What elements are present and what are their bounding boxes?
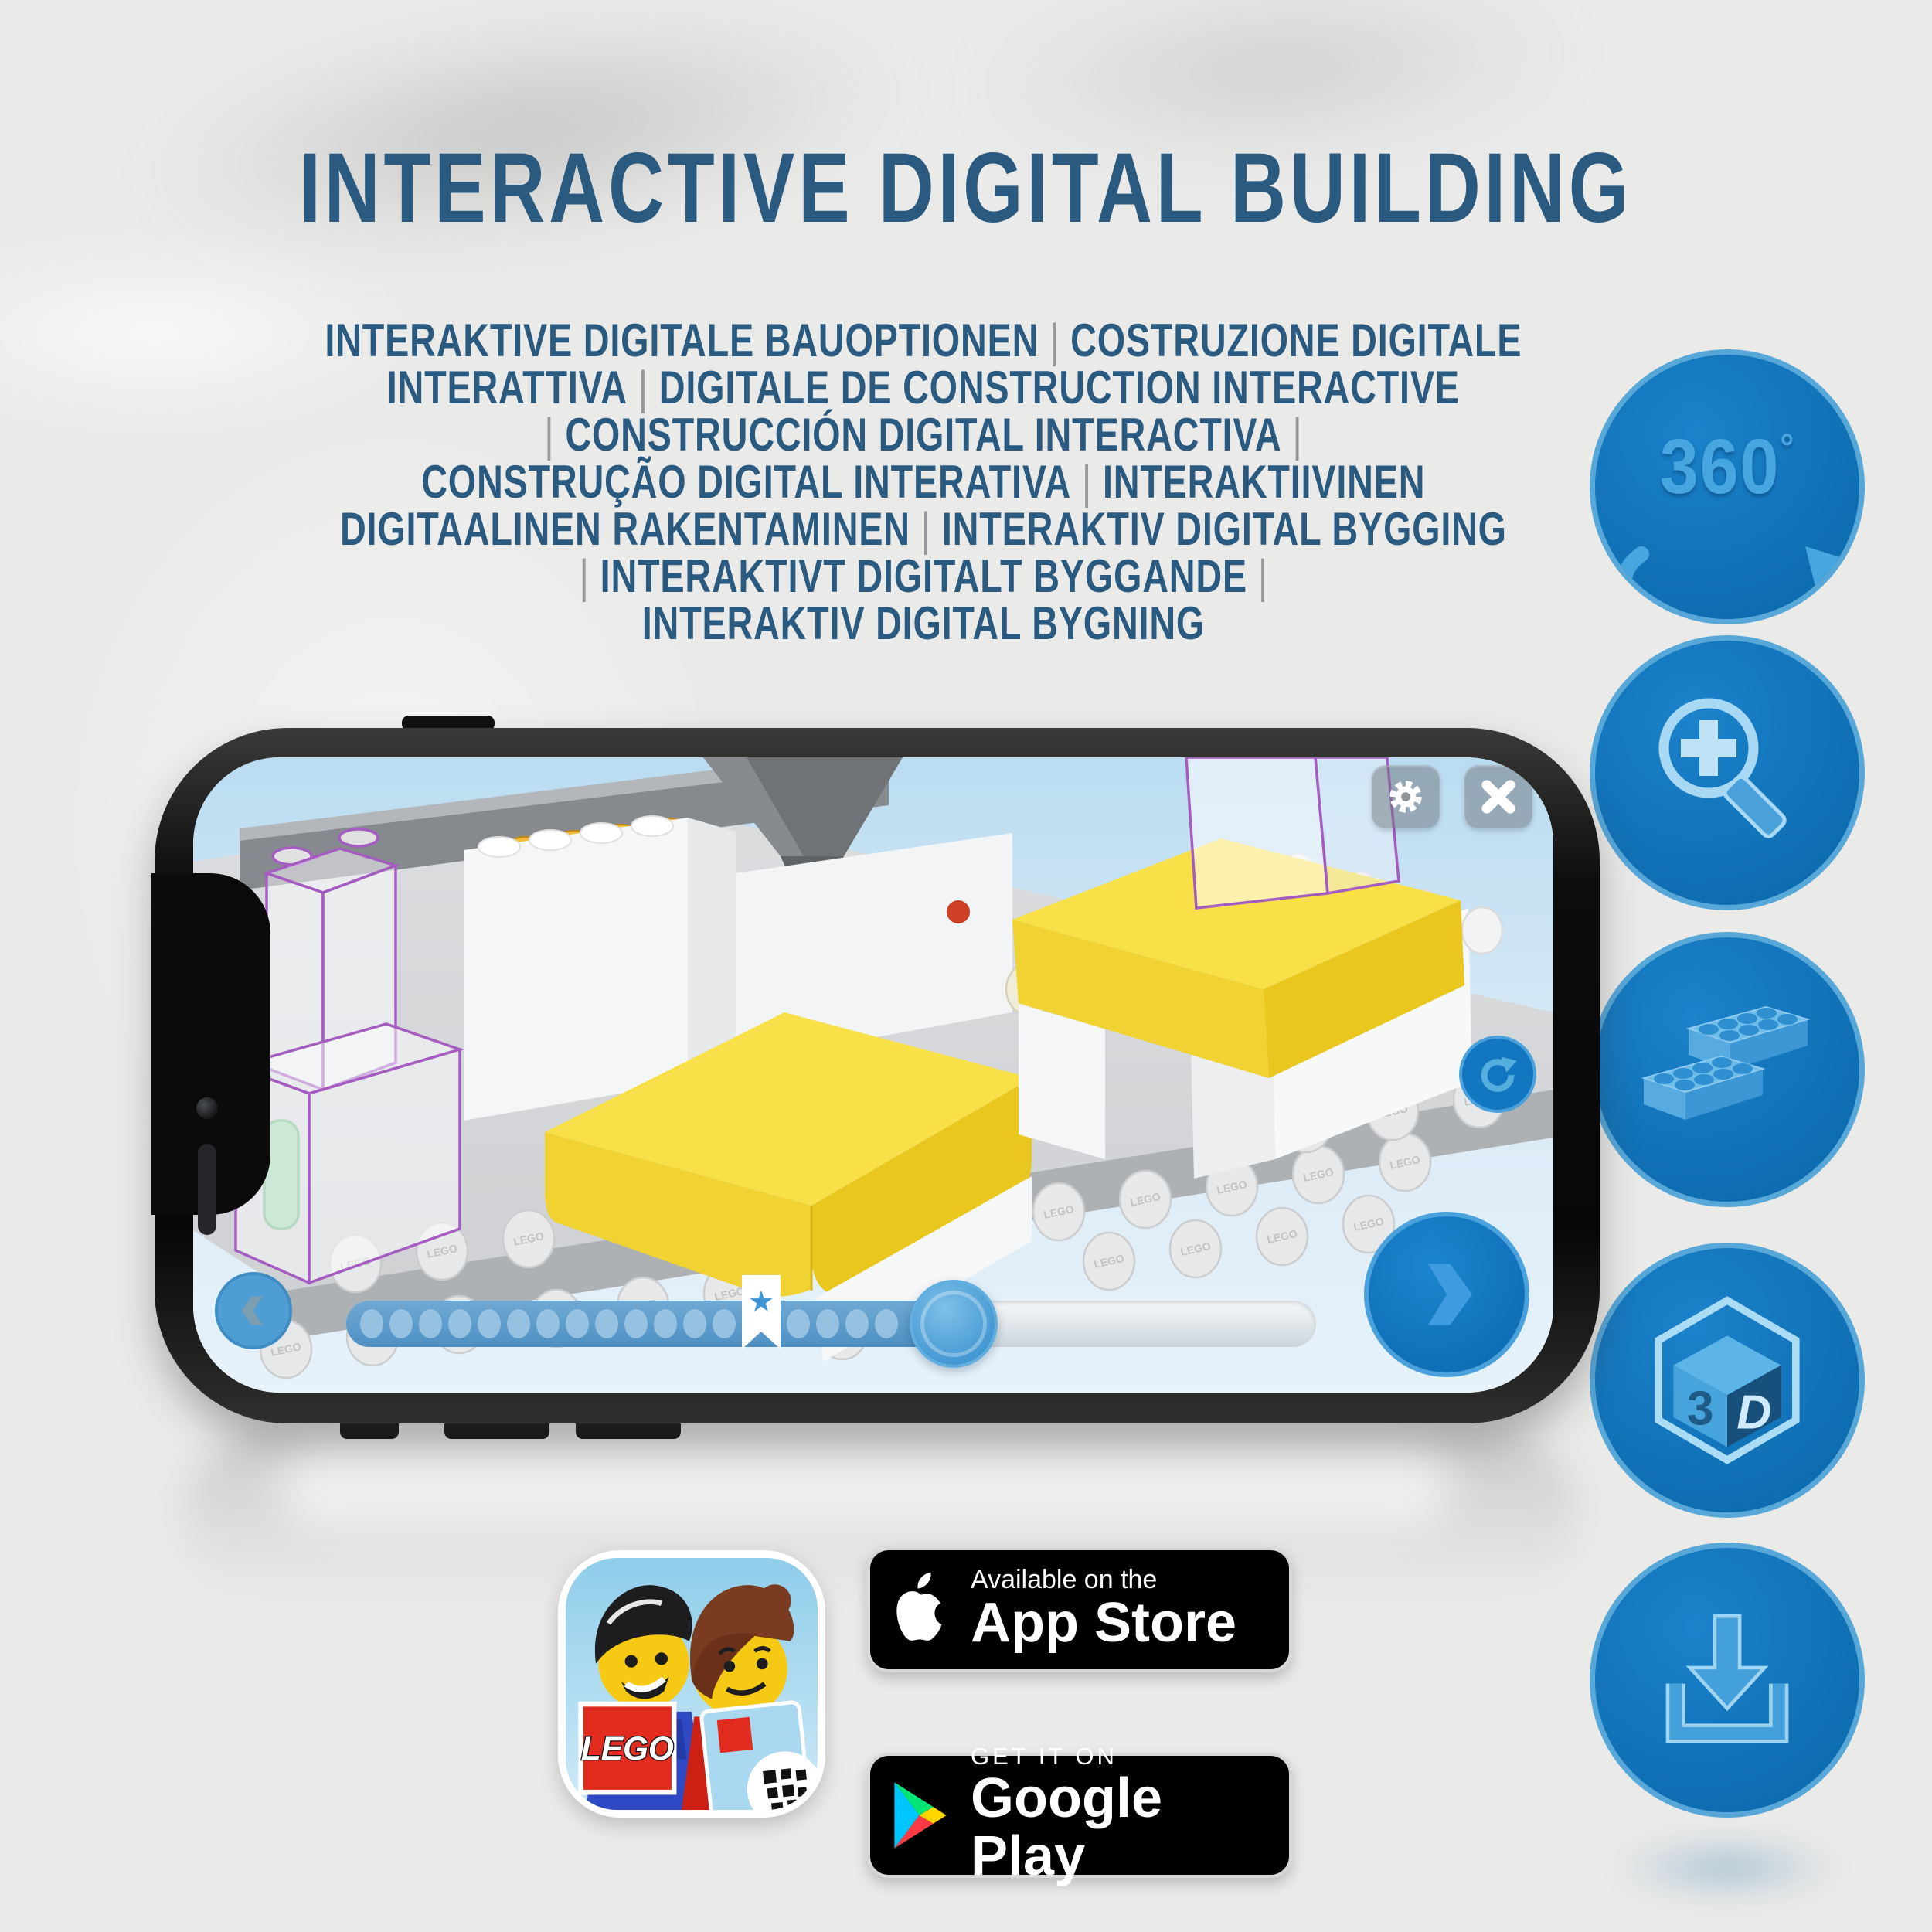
- separator-pipe: |: [579, 550, 589, 602]
- lego-logo: LEGO: [581, 1704, 675, 1792]
- subtitle-text: DIGITAALINEN RAKENTAMINEN: [340, 503, 910, 555]
- previous-step-button[interactable]: [215, 1272, 292, 1349]
- progress-dot: [683, 1309, 706, 1338]
- download-icon: [1638, 1591, 1816, 1769]
- close-button[interactable]: [1464, 765, 1532, 828]
- build-progress-slider[interactable]: ★: [346, 1301, 958, 1347]
- separator-pipe: |: [1049, 315, 1060, 366]
- app-store-tagline: Available on the: [971, 1566, 1236, 1594]
- svg-text:LEGO: LEGO: [581, 1730, 674, 1767]
- subtitle-text: CONSTRUÇÃO DIGITAL INTERATIVA: [421, 456, 1071, 508]
- feature-circle-360: 360°: [1590, 349, 1865, 624]
- subtitle-line: |INTERAKTIVT DIGITALT BYGGANDE|: [0, 553, 1847, 600]
- gear-icon: [1383, 774, 1428, 819]
- progress-dots: [360, 1309, 736, 1338]
- progress-dot: [478, 1309, 501, 1338]
- separator-pipe: |: [1082, 456, 1092, 508]
- chevron-left-icon: [233, 1291, 274, 1331]
- notch: [151, 873, 270, 1215]
- feature-circle-bricks: [1590, 932, 1865, 1207]
- google-play-label: Google Play: [971, 1770, 1289, 1886]
- close-icon: [1478, 776, 1519, 818]
- subtitle-line: CONSTRUÇÃO DIGITAL INTERATIVA|INTERAKTII…: [0, 458, 1847, 505]
- subtitle-text: INTERAKTIV DIGITAL BYGGING: [942, 503, 1507, 555]
- progress-dot: [419, 1309, 442, 1338]
- progress-dot: [389, 1309, 413, 1338]
- subtitle-text: INTERAKTIVT DIGITALT BYGGANDE: [600, 550, 1247, 602]
- subtitle-line: INTERAKTIVE DIGITALE BAUOPTIONEN|COSTRUZ…: [0, 317, 1847, 364]
- progress-dot: [507, 1309, 530, 1338]
- next-step-button[interactable]: [1364, 1212, 1529, 1377]
- separator-pipe: |: [1258, 550, 1268, 602]
- lego-scene: LEGOLEGOLEGOLEGOLEGOLEGOLEGOLEGOLEGOLEGO…: [193, 757, 1553, 1393]
- lego-bricks-icon: [1634, 988, 1820, 1151]
- camera-dot: [196, 1097, 218, 1119]
- refresh-icon: [1474, 1050, 1522, 1098]
- app-store-badge[interactable]: Available on the App Store: [867, 1547, 1292, 1672]
- progress-dot: [816, 1309, 839, 1338]
- phone-frame: LEGOLEGOLEGOLEGOLEGOLEGOLEGOLEGOLEGOLEGO…: [155, 728, 1600, 1423]
- progress-dot: [654, 1309, 677, 1338]
- subtitle-text: INTERATTIVA: [387, 362, 628, 413]
- zoom-magnifier-icon: [1634, 680, 1820, 866]
- play-triangle-icon: [870, 1780, 971, 1851]
- subtitle-text: INTERAKTIV DIGITAL BYGNING: [642, 597, 1205, 649]
- cube-face-d: D: [1736, 1386, 1771, 1439]
- settings-button[interactable]: [1372, 765, 1440, 828]
- instruction-booklet: [701, 1700, 818, 1810]
- star-marker: ★: [742, 1275, 781, 1349]
- google-play-badge[interactable]: GET IT ON Google Play: [867, 1753, 1292, 1878]
- progress-dot: [845, 1309, 869, 1338]
- progress-dot: [787, 1309, 810, 1338]
- phone-screen: LEGOLEGOLEGOLEGOLEGOLEGOLEGOLEGOLEGOLEGO…: [193, 757, 1553, 1393]
- feature-circle-3d: 3 D: [1590, 1243, 1865, 1518]
- google-play-tagline: GET IT ON: [971, 1744, 1289, 1770]
- progress-dot: [595, 1309, 618, 1338]
- rotate-reset-button[interactable]: [1459, 1036, 1536, 1113]
- progress-dot: [875, 1309, 898, 1338]
- circle-reflection: [1611, 1833, 1843, 1903]
- star-icon: ★: [748, 1287, 774, 1317]
- progress-dot: [536, 1309, 560, 1338]
- separator-pipe: |: [1293, 409, 1303, 461]
- subtitle: INTERAKTIVE DIGITALE BAUOPTIONEN|COSTRUZ…: [0, 317, 1847, 647]
- progress-dot: [448, 1309, 471, 1338]
- separator-pipe: |: [638, 362, 648, 413]
- rotate-360-icon: 360°: [1595, 443, 1859, 532]
- chevron-right-icon: [1404, 1252, 1489, 1337]
- ghost-box: [1186, 757, 1399, 908]
- subtitle-line: DIGITAALINEN RAKENTAMINEN|INTERAKTIV DIG…: [0, 505, 1847, 553]
- rotation-arrow: [1606, 542, 1853, 625]
- slider-knob[interactable]: [910, 1280, 998, 1368]
- separator-pipe: |: [921, 503, 931, 555]
- cube-3d-icon: 3 D: [1634, 1287, 1820, 1473]
- progress-dot: [360, 1309, 383, 1338]
- apple-icon: [870, 1571, 971, 1648]
- progress-dot: [624, 1309, 648, 1338]
- subtitle-text: INTERAKTIIVINEN: [1103, 456, 1425, 508]
- progress-dot: [713, 1309, 736, 1338]
- page-title: INTERACTIVE DIGITAL BUILDING: [0, 131, 1932, 245]
- subtitle-text: INTERAKTIVE DIGITALE BAUOPTIONEN: [325, 315, 1039, 366]
- subtitle-line: INTERATTIVA|DIGITALE DE CONSTRUCTION INT…: [0, 364, 1847, 411]
- subtitle-text: COSTRUZIONE DIGITALE: [1070, 315, 1522, 366]
- poster-canvas: INTERACTIVE DIGITAL BUILDING INTERAKTIVE…: [0, 0, 1932, 1932]
- feature-circle-download: [1590, 1543, 1865, 1818]
- subtitle-text: DIGITALE DE CONSTRUCTION INTERACTIVE: [659, 362, 1460, 413]
- lego-app-icon[interactable]: LEGO: [558, 1550, 825, 1818]
- speaker-slit: [198, 1144, 216, 1235]
- screen-reflection: [278, 1436, 1453, 1529]
- app-store-label: App Store: [971, 1594, 1236, 1653]
- subtitle-line: |CONSTRUCCIÓN DIGITAL INTERACTIVA|: [0, 411, 1847, 458]
- progress-dot: [566, 1309, 589, 1338]
- separator-pipe: |: [544, 409, 554, 461]
- progress-dots: [787, 1309, 898, 1338]
- subtitle-line: INTERAKTIV DIGITAL BYGNING: [0, 600, 1847, 647]
- feature-circle-zoom: [1590, 635, 1865, 910]
- subtitle-text: CONSTRUCCIÓN DIGITAL INTERACTIVA: [565, 409, 1281, 461]
- cube-face-3: 3: [1687, 1383, 1714, 1436]
